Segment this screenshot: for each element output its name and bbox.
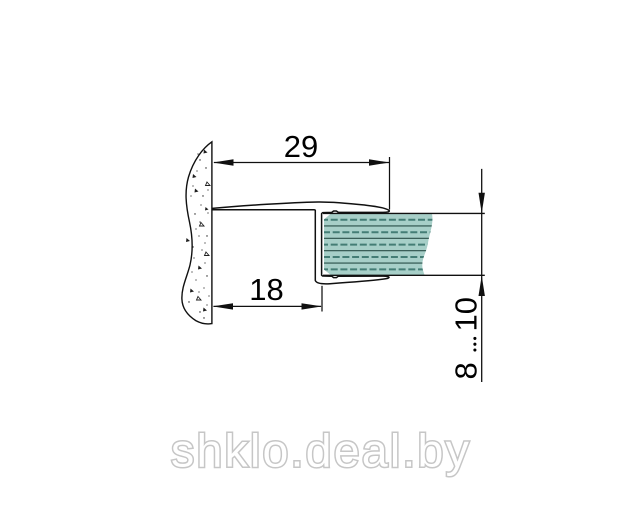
svg-text:18: 18: [249, 272, 283, 307]
svg-text:shklo.deal.by: shklo.deal.by: [171, 425, 471, 477]
svg-text:10: 10: [449, 297, 484, 331]
svg-text:29: 29: [284, 129, 318, 164]
svg-text:8: 8: [449, 362, 484, 379]
